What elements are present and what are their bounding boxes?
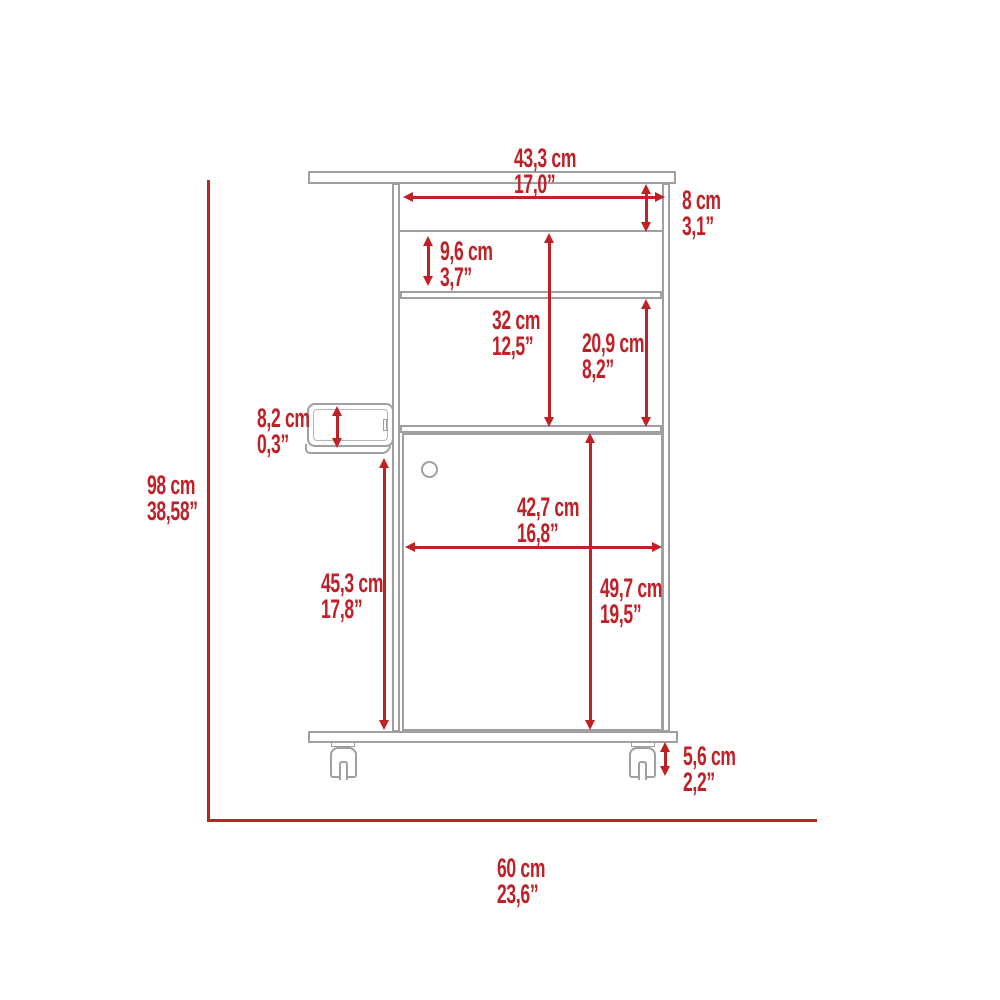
- dim-line: [645, 192, 648, 224]
- arrowhead-down: [332, 438, 342, 448]
- side-holder-latch: [383, 419, 387, 431]
- overall-width-line: [207, 819, 817, 822]
- side-holder-tray: [307, 403, 394, 447]
- dim-second-shelf-inch: 3,7”: [440, 264, 493, 290]
- arrowhead-right: [655, 192, 665, 202]
- dim-label-overall-height: 98 cm 38,58”: [147, 472, 198, 524]
- right-side-panel: [662, 183, 670, 732]
- dim-second-shelf-cm: 9,6 cm: [440, 238, 493, 264]
- dim-arrow-caster-height: [660, 742, 670, 776]
- arrowhead-down: [585, 720, 595, 730]
- dim-open-section-cm: 32 cm: [492, 307, 540, 333]
- dim-line: [336, 413, 339, 441]
- dim-upper-compartment-inch: 8,2”: [582, 356, 644, 382]
- dim-lower-left-inch: 17,8”: [321, 596, 383, 622]
- dim-label-side-holder-height: 8,2 cm 0,3”: [257, 405, 310, 457]
- dim-lower-left-cm: 45,3 cm: [321, 570, 383, 596]
- dimension-diagram: 43,3 cm 17,0” 8 cm 3,1” 9,6 cm 3,7” 32 c…: [0, 0, 1000, 1000]
- dim-arrow-top-shelf-height: [641, 184, 651, 232]
- dim-overall-height-cm: 98 cm: [147, 472, 198, 498]
- dim-caster-inch: 2,2”: [683, 769, 736, 795]
- dim-door-height-inch: 19,5”: [600, 601, 662, 627]
- base-board: [308, 731, 678, 743]
- dim-line: [548, 241, 551, 419]
- dim-line: [645, 307, 648, 419]
- side-holder-inner-line: [313, 409, 388, 441]
- arrowhead-down: [641, 222, 651, 232]
- dim-label-door-height: 49,7 cm 19,5”: [600, 575, 662, 627]
- dim-door-width-inch: 16,8”: [517, 520, 579, 546]
- dim-label-upper-compartment-height: 20,9 cm 8,2”: [582, 330, 644, 382]
- dim-label-overall-width: 60 cm 23,6”: [497, 855, 545, 907]
- dim-door-width-cm: 42,7 cm: [517, 494, 579, 520]
- shelf-line-upper: [400, 230, 662, 232]
- left-side-panel: [392, 183, 400, 732]
- dim-open-section-inch: 12,5”: [492, 333, 540, 359]
- dim-side-holder-cm: 8,2 cm: [257, 405, 310, 431]
- dim-label-second-shelf-height: 9,6 cm 3,7”: [440, 238, 493, 290]
- dim-label-lower-left-height: 45,3 cm 17,8”: [321, 570, 383, 622]
- side-holder-lip: [305, 444, 391, 454]
- arrowhead-right: [652, 542, 662, 552]
- dim-label-top-shelf-height: 8 cm 3,1”: [682, 187, 721, 239]
- arrowhead-down: [641, 417, 651, 427]
- shelf-board-middle: [400, 291, 662, 299]
- arrowhead-down: [423, 276, 433, 286]
- dim-label-caster-height: 5,6 cm 2,2”: [683, 743, 736, 795]
- overall-height-line: [207, 180, 210, 822]
- arrowhead-down: [544, 417, 554, 427]
- right-caster-notch: [638, 761, 647, 780]
- dim-arrow-door-height: [585, 433, 595, 730]
- dim-top-width-cm: 43,3 cm: [514, 145, 576, 171]
- dim-label-open-section-height: 32 cm 12,5”: [492, 307, 540, 359]
- dim-line: [589, 441, 592, 722]
- door-knob: [421, 461, 438, 478]
- dim-arrow-open-section-height: [544, 233, 554, 427]
- dim-overall-height-inch: 38,58”: [147, 498, 198, 524]
- dim-arrow-second-shelf-height: [423, 236, 433, 286]
- dim-side-holder-inch: 0,3”: [257, 431, 310, 457]
- dim-overall-width-inch: 23,6”: [497, 881, 545, 907]
- dim-overall-width-cm: 60 cm: [497, 855, 545, 881]
- left-caster-notch: [339, 761, 348, 780]
- dim-line: [427, 244, 430, 278]
- dim-caster-cm: 5,6 cm: [683, 743, 736, 769]
- arrowhead-down: [379, 720, 389, 730]
- top-board: [308, 171, 676, 184]
- arrowhead-down: [660, 766, 670, 776]
- dim-door-height-cm: 49,7 cm: [600, 575, 662, 601]
- dim-top-width-inch: 17,0”: [514, 171, 576, 197]
- dim-label-top-width: 43,3 cm 17,0”: [514, 145, 576, 197]
- dim-label-door-width: 42,7 cm 16,8”: [517, 494, 579, 546]
- dim-top-shelf-cm: 8 cm: [682, 187, 721, 213]
- dim-arrow-side-holder-height: [332, 406, 342, 448]
- dim-upper-compartment-cm: 20,9 cm: [582, 330, 644, 356]
- dim-top-shelf-inch: 3,1”: [682, 213, 721, 239]
- divider-board: [400, 425, 662, 433]
